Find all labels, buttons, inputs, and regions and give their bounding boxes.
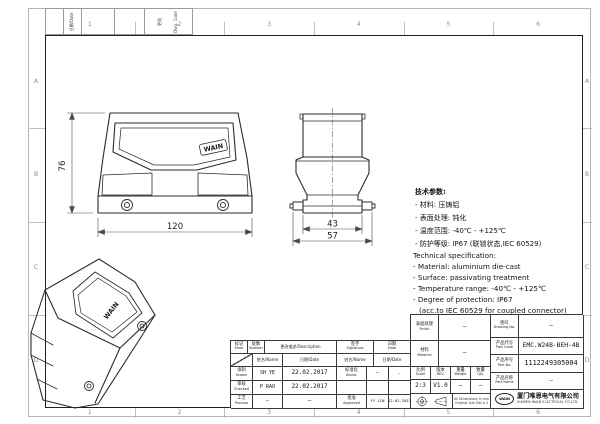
subheader-name1: 姓名/Name — [253, 354, 283, 367]
projection-symbol-icons — [413, 395, 451, 408]
grid-letter-right: C — [585, 265, 589, 271]
qty-value: — — [471, 380, 491, 394]
isometric-logo-text: WAIN — [102, 301, 120, 322]
isometric-outline — [31, 259, 155, 408]
grid-letter-left: B — [34, 172, 38, 178]
front-view-outline — [98, 113, 252, 213]
grid-tick — [224, 408, 225, 418]
weight-label: 重量 Weight — [451, 367, 471, 380]
row-drawn-name: SH YE — [253, 367, 283, 381]
grid-tick — [493, 408, 494, 418]
part-no-label: 产品序号 Part No. — [491, 355, 519, 373]
grid-number-top: 5 — [447, 22, 451, 28]
part-name-value: — — [519, 373, 584, 390]
spec-cn-line: - 表面处理: 钝化 — [415, 212, 541, 225]
spec-en-line: - Degree of protection: IP67 — [413, 294, 567, 305]
subheader-date1: 日期/Date — [283, 354, 337, 367]
grid-tick — [493, 22, 494, 35]
drawing-no-label: 图号 Drawing No. — [491, 315, 519, 338]
grid-number-top: 6 — [536, 22, 540, 28]
corner-dwg-label-cn: 更改 — [158, 18, 162, 26]
grid-letter-right: B — [585, 172, 589, 178]
scale-value: 2:3 — [411, 380, 431, 394]
row-stand-label: 标准化 Stand. — [337, 367, 367, 381]
grid-tick — [583, 128, 592, 129]
grid-number-top: 4 — [357, 22, 361, 28]
dim-76-label: 76 — [58, 161, 68, 172]
company-cell: WAIN 厦门唯恩电气有限公司 XIAMEN WAIN ELECTRICAL C… — [491, 390, 584, 409]
header-signature: 签字 Signature — [337, 341, 374, 354]
subheader-name2: 姓名/Name — [337, 354, 374, 367]
material-value: — — [439, 341, 491, 367]
corner-box-divider — [144, 9, 145, 34]
dim-43-label: 43 — [327, 220, 338, 230]
row-checked-name: P RAO — [253, 381, 283, 395]
isometric-view: WAIN — [25, 252, 210, 420]
drawing-no-value: — — [519, 315, 584, 338]
front-view-dimensions — [67, 113, 252, 237]
finish-value: — — [439, 315, 491, 341]
spec-en-line: - Material: aluminium die-cast — [413, 261, 567, 272]
row-stand-name: — — [367, 367, 389, 381]
row-blank-name — [367, 381, 389, 395]
front-view-logo-plate: WAIN — [199, 139, 228, 155]
company-name-en: XIAMEN WAIN ELECTRICAL CO.LTD — [517, 401, 577, 405]
corner-box-divider — [81, 9, 82, 34]
spec-en-title: Technical specification: — [413, 250, 567, 261]
corner-box-divider — [63, 9, 64, 34]
row-blank-label — [337, 381, 367, 395]
finish-label: 表面处理 Finish — [411, 315, 439, 341]
spec-english: Technical specification: - Material: alu… — [413, 250, 567, 316]
grid-number-bottom: 5 — [447, 410, 451, 416]
row-process-name: — — [253, 395, 283, 409]
row-drawn-date: 22.02.2017 — [283, 367, 337, 381]
grid-number-bottom: 4 — [357, 410, 361, 416]
rev-value: V1.0 — [431, 380, 451, 394]
spec-chinese: 技术参数: - 材料: 压铸铝 - 表面处理: 钝化 - 温度范围: -40℃ … — [415, 186, 541, 251]
part-code-label: 产品代号 Part Code — [491, 338, 519, 355]
row-process-date: — — [283, 395, 337, 409]
grid-tick — [314, 408, 315, 418]
spec-cn-title: 技术参数: — [415, 186, 541, 199]
revision-table: 标记 Mark 处数 Number 更改描述/Description 签字 Si… — [230, 340, 411, 408]
row-stand-date: — — [389, 367, 411, 381]
part-name-label: 产品名称 Part Name — [491, 373, 519, 390]
header-number: 处数 Number — [248, 341, 265, 354]
subheader-diagonal — [231, 354, 253, 367]
part-no-value: 1112249305004 — [519, 355, 584, 373]
header-date: 日期 Date — [374, 341, 411, 354]
row-blank-date — [389, 381, 411, 395]
material-label: 材料 Material — [411, 341, 439, 367]
scale-label: 比例 Scale — [411, 367, 431, 380]
wain-logo: WAIN — [495, 393, 514, 405]
row-process-label: 工艺 Process — [231, 395, 253, 409]
front-view: WAIN 76 120 — [55, 90, 285, 250]
grid-letter-right: D — [585, 358, 590, 364]
row-approved-date: 22.02.2017 — [389, 395, 411, 409]
row-approved-label: 批准 Approved — [337, 395, 367, 409]
grid-tick — [404, 22, 405, 35]
spec-cn-line: - 温度范围: -40℃ - +125℃ — [415, 225, 541, 238]
grid-number-bottom: 6 — [536, 410, 540, 416]
grid-letter-right: A — [585, 79, 589, 85]
corner-revision-boxes: 日期/Date 更改 Dwg. Code — [45, 8, 193, 35]
projection-symbols — [411, 394, 453, 409]
grid-tick — [583, 222, 592, 223]
rev-label: 版本 REV. — [431, 367, 451, 380]
grid-letter-left: A — [34, 79, 38, 85]
side-view: 43 57 — [283, 105, 385, 255]
drawing-sheet: 1 2 3 4 5 6 1 2 3 4 5 6 A B C D A B C D … — [0, 0, 600, 424]
grid-tick — [28, 128, 45, 129]
part-code-value: EMC.W24B-BEH-4B — [519, 338, 584, 355]
dim-120-label: 120 — [167, 222, 183, 232]
company-names: 厦门唯恩电气有限公司 XIAMEN WAIN ELECTRICAL CO.LTD — [517, 394, 579, 405]
row-checked-date: 22.02.2017 — [283, 381, 337, 395]
corner-dwg-label-en: Dwg. Code — [174, 11, 178, 33]
grid-number-top: 3 — [267, 22, 271, 28]
spec-en-line: - Surface: passivating treatment — [413, 272, 567, 283]
dim-57-label: 57 — [327, 232, 338, 242]
part-info-block: 图号 Drawing No. — 产品代号 Part Code EMC.W24B… — [490, 314, 583, 408]
grid-tick — [28, 222, 45, 223]
grid-tick — [224, 22, 225, 35]
subheader-date2: 日期/Date — [374, 354, 411, 367]
header-mark: 标记 Mark — [231, 341, 248, 354]
dimension-note: All Dimensions in mm Original Size DIN A… — [453, 394, 491, 409]
row-drawn-label: 拟制 Drawn — [231, 367, 253, 381]
spec-en-line: - Temperature range: -40℃ - +125℃ — [413, 283, 567, 294]
spec-cn-line: - 材料: 压铸铝 — [415, 199, 541, 212]
grid-tick — [314, 22, 315, 35]
grid-tick — [404, 408, 405, 418]
corner-box-divider — [114, 9, 115, 34]
material-scale-block: 表面处理 Finish — 材料 Material — 比例 Scale 版本 … — [410, 314, 490, 408]
grid-tick — [583, 315, 592, 316]
header-description: 更改描述/Description — [265, 341, 337, 354]
row-approved-name: YY LIN — [367, 395, 389, 409]
row-checked-label: 审核 Checked — [231, 381, 253, 395]
weight-value: — — [451, 380, 471, 394]
qty-label: 数量 Qty. — [471, 367, 491, 380]
grid-number-bottom: 3 — [267, 410, 271, 416]
corner-date-label: 日期/Date — [70, 13, 74, 32]
